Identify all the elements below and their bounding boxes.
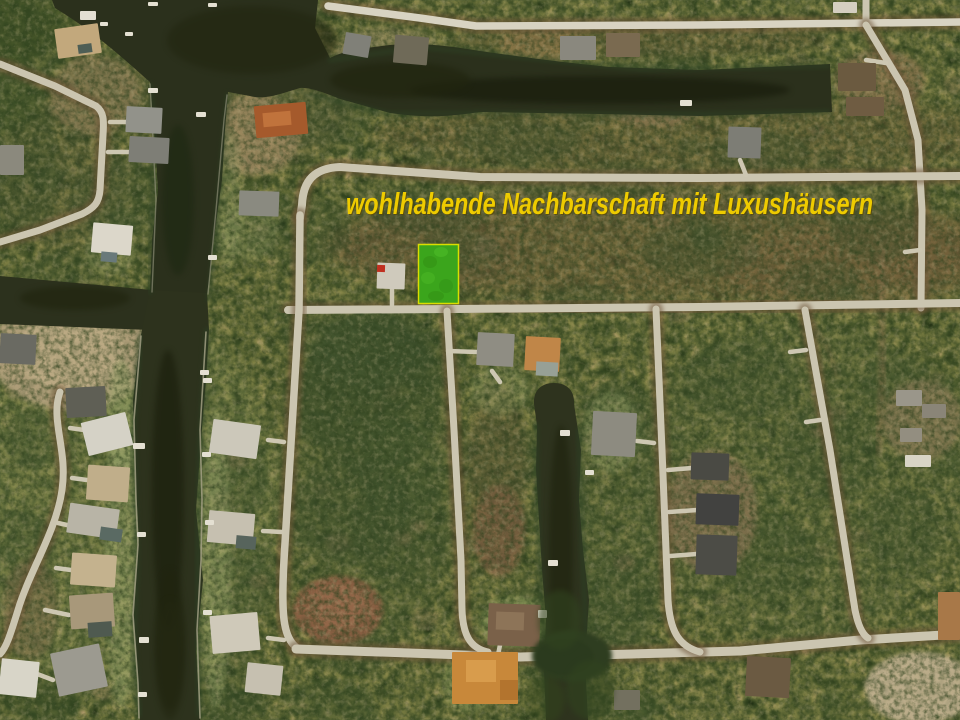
svg-text:wohlhabende Nachbarschaft mit: wohlhabende Nachbarschaft mit Luxushäuse… — [346, 186, 873, 221]
